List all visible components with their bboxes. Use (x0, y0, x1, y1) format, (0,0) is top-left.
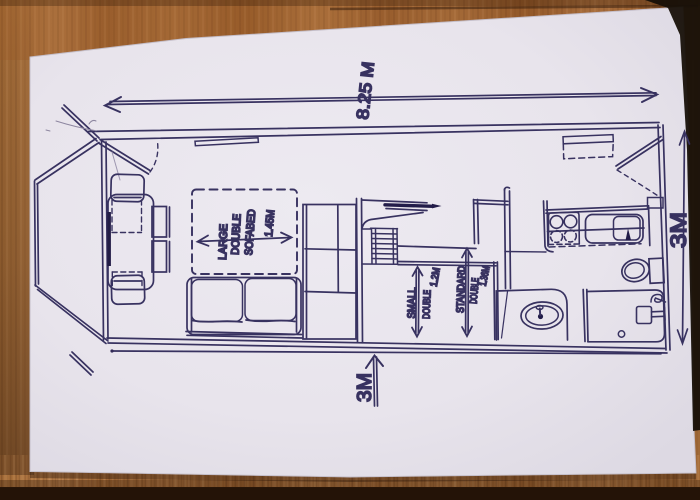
svg-text:DOUBLE: DOUBLE (230, 214, 244, 256)
svg-text:STANDARD: STANDARD (455, 265, 469, 313)
svg-text:LARGE: LARGE (217, 224, 230, 260)
svg-text:DOUBLE: DOUBLE (422, 290, 434, 320)
svg-text:3M: 3M (666, 212, 691, 248)
svg-text:3M: 3M (354, 373, 376, 402)
svg-text:SMALL: SMALL (406, 287, 419, 318)
svg-text:1.45M: 1.45M (263, 209, 277, 237)
